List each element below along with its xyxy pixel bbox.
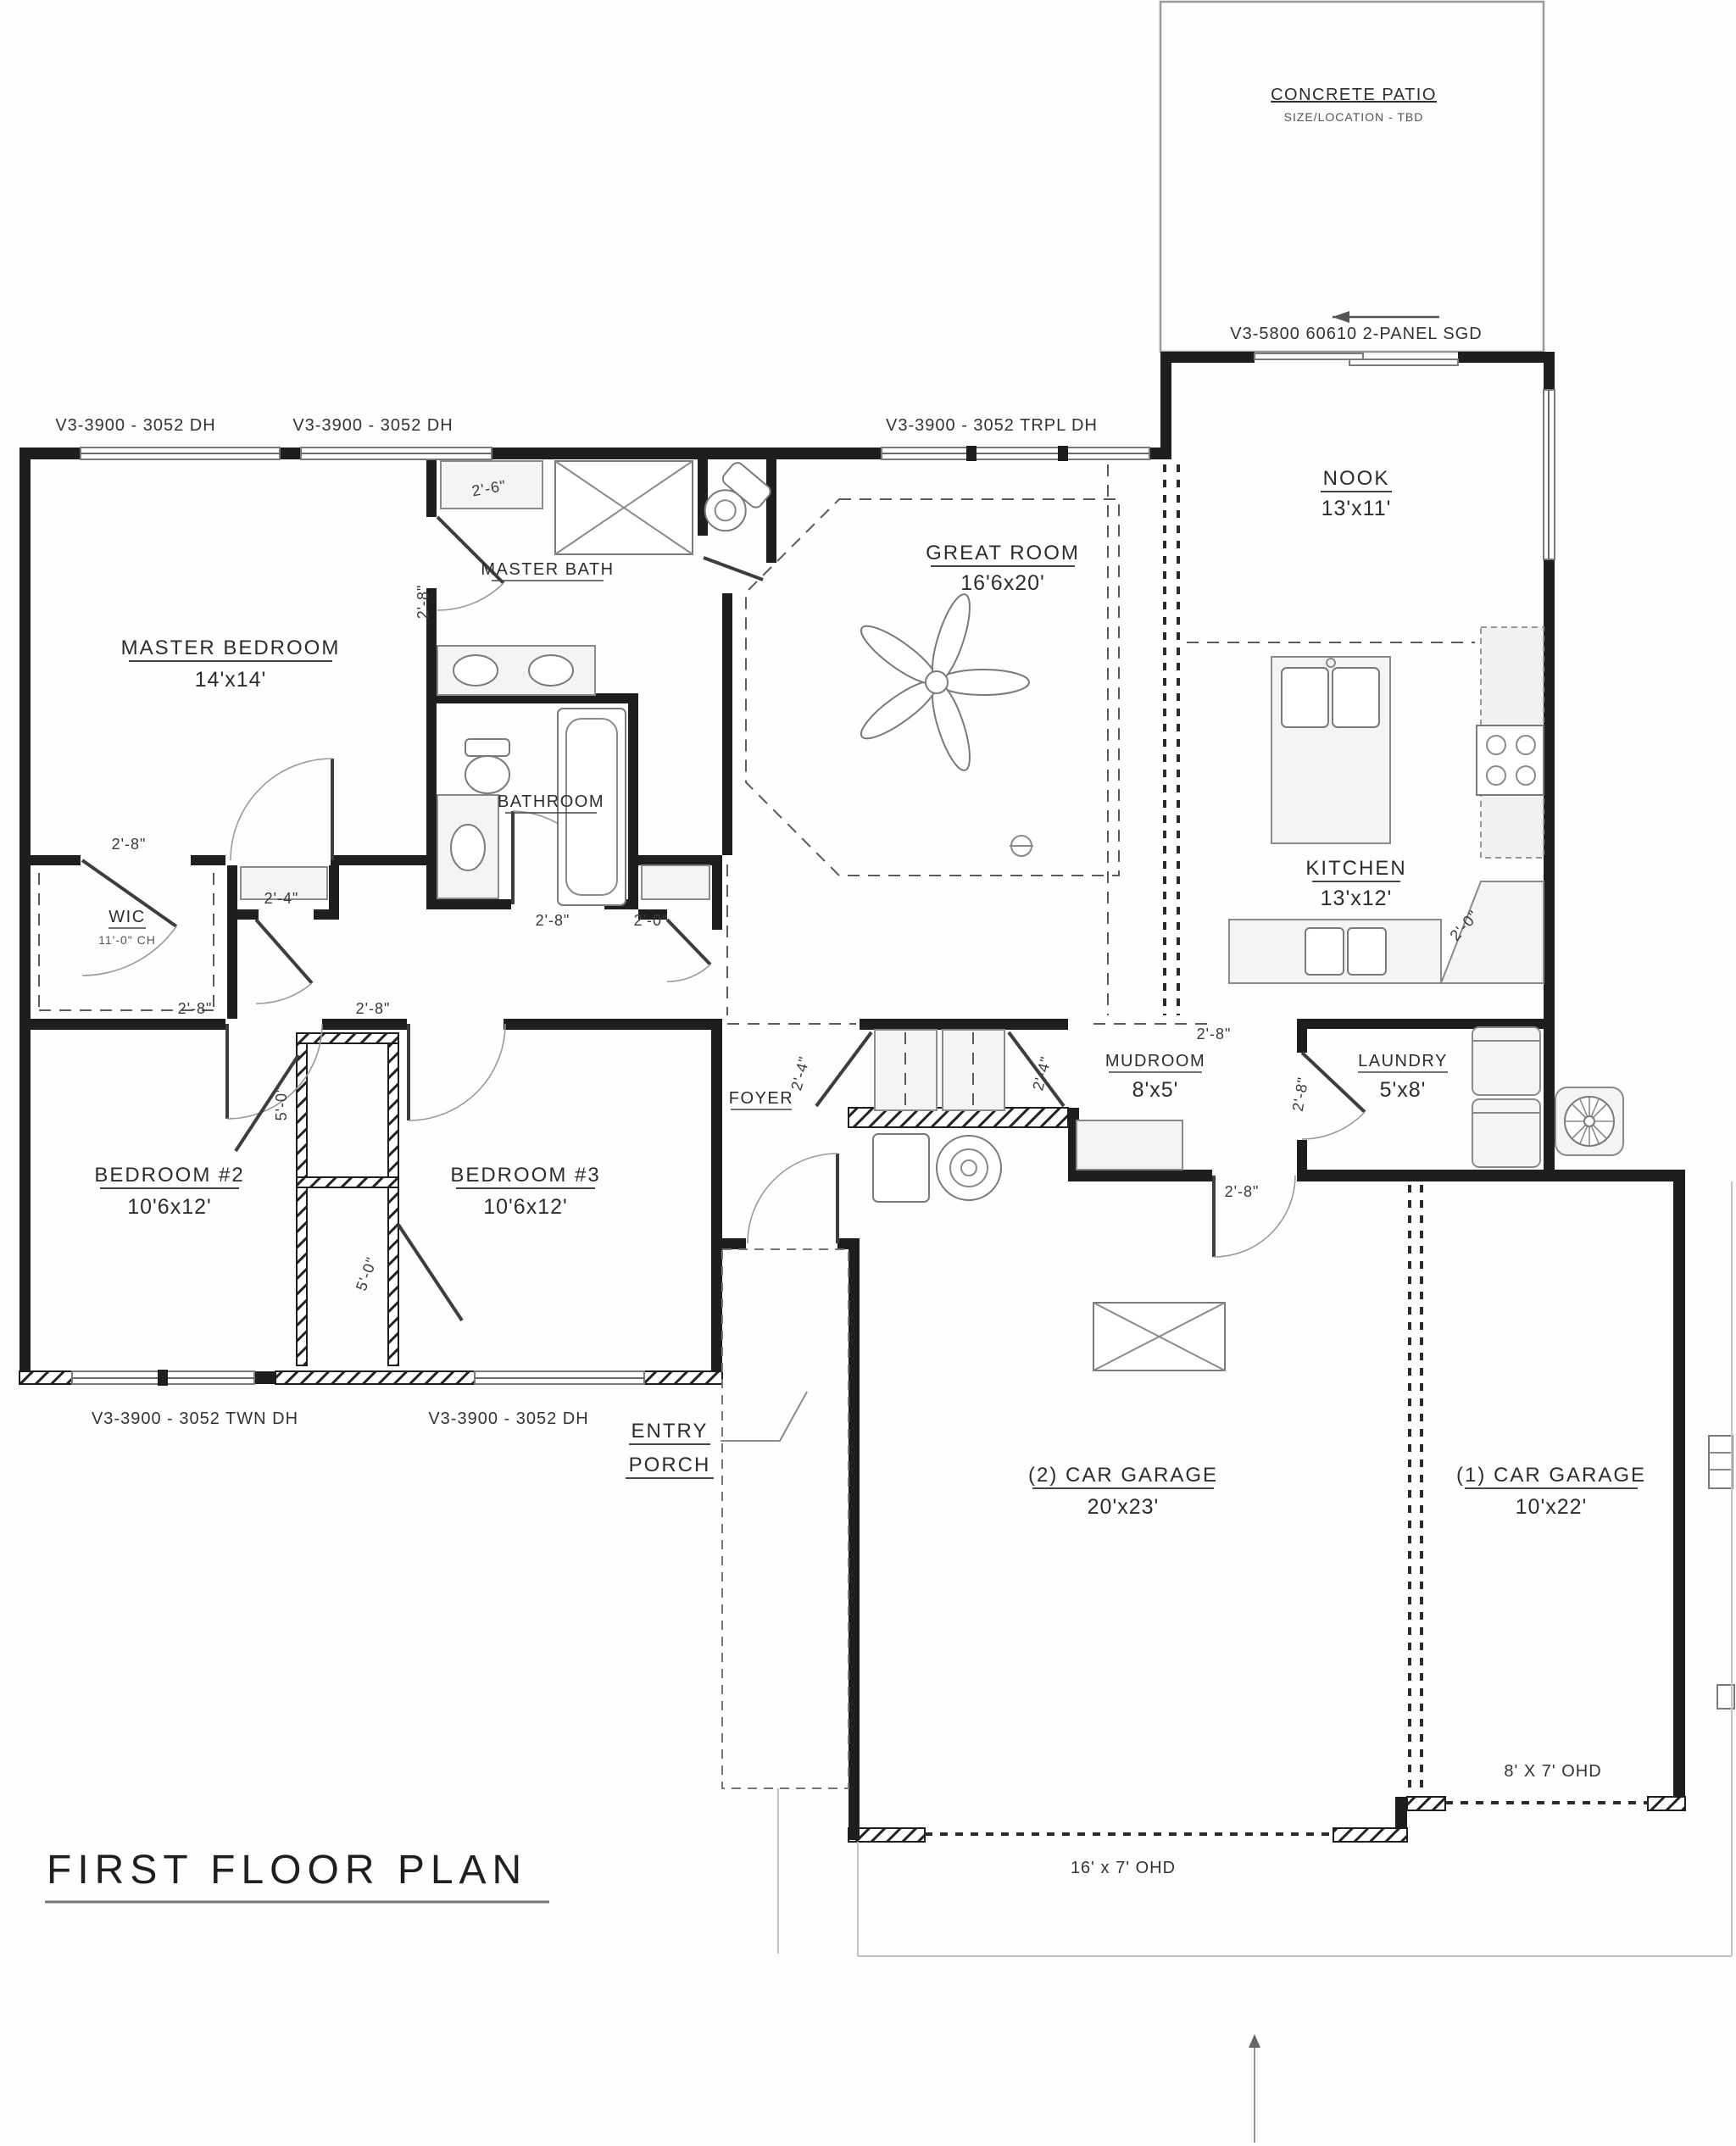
dim-foyer-closet-left: 2'-4" bbox=[787, 1054, 813, 1092]
kitchen-label: KITCHEN bbox=[1305, 857, 1406, 880]
garage1-label: (1) CAR GARAGE bbox=[1456, 1464, 1646, 1487]
dim-linen-door: 2'-4" bbox=[264, 890, 299, 907]
floor-plan-drawing: CONCRETE PATIO SIZE/LOCATION - TBD bbox=[0, 0, 1736, 2146]
sgd-label: V3-5800 60610 2-PANEL SGD bbox=[1230, 325, 1482, 343]
bedroom3-size: 10'6x12' bbox=[483, 1195, 568, 1219]
wic-ch-label: 11'-0" CH bbox=[98, 933, 156, 947]
dim-bedroom2-door: 2'-8" bbox=[178, 1000, 213, 1017]
wic-label: WIC bbox=[108, 908, 145, 926]
master-bath-label: MASTER BATH bbox=[481, 560, 614, 579]
window-greatroom-triple bbox=[882, 446, 1149, 461]
dim-master-suite: 2'-8" bbox=[415, 585, 431, 620]
nook-label: NOOK bbox=[1323, 467, 1390, 490]
great-room-size: 16'6x20' bbox=[960, 571, 1045, 595]
washer-dryer bbox=[1472, 1027, 1540, 1167]
entry-porch-leader bbox=[721, 1392, 807, 1441]
mudroom-bench bbox=[1077, 1120, 1182, 1170]
exterior-fan-icon bbox=[1555, 1087, 1623, 1155]
win-label-bottom-1: V3-3900 - 3052 TWN DH bbox=[92, 1409, 298, 1428]
win-label-bottom-2: V3-3900 - 3052 DH bbox=[428, 1409, 588, 1428]
master-bedroom-size: 14'x14' bbox=[195, 668, 267, 692]
kitchen-south-counter bbox=[1229, 920, 1441, 983]
bedroom2-size: 10'6x12' bbox=[127, 1195, 212, 1219]
win-label-top-2: V3-3900 - 3052 DH bbox=[292, 416, 453, 435]
window-bedroom3 bbox=[475, 1371, 644, 1384]
bedroom3-door bbox=[409, 1024, 505, 1120]
bedroom3-closet-door bbox=[398, 1225, 462, 1320]
bedroom3-label: BEDROOM #3 bbox=[450, 1164, 600, 1187]
garage2-size: 20'x23' bbox=[1088, 1495, 1160, 1519]
bathroom-toilet bbox=[465, 739, 509, 793]
linen-closet-door bbox=[256, 920, 312, 1004]
master-bedroom-door bbox=[231, 759, 332, 860]
plan-title: FIRST FLOOR PLAN bbox=[47, 1848, 527, 1893]
great-room-label: GREAT ROOM bbox=[926, 542, 1080, 564]
water-heater-icon bbox=[937, 1136, 1001, 1200]
mudroom-label: MUDROOM bbox=[1105, 1052, 1205, 1070]
ceiling-outlet-icon bbox=[1010, 836, 1033, 856]
patio-sub-label: SIZE/LOCATION - TBD bbox=[1284, 110, 1424, 124]
mudroom-size: 8'x5' bbox=[1132, 1078, 1179, 1102]
dim-closet2: 5'-0" bbox=[273, 1087, 290, 1121]
nook-size: 13'x11' bbox=[1321, 497, 1392, 520]
range-icon bbox=[1477, 726, 1544, 795]
dim-bath-door: 2'-8" bbox=[536, 912, 570, 929]
ohd16-label: 16' x 7' OHD bbox=[1071, 1859, 1176, 1877]
water-closet-door bbox=[704, 558, 763, 580]
kitchen-island bbox=[1271, 657, 1390, 843]
room-labels: NOOK 13'x11' GREAT ROOM 16'6x20' MASTER … bbox=[94, 467, 1646, 1519]
master-shower bbox=[555, 461, 693, 554]
master-vanity bbox=[437, 646, 595, 695]
laundry-size: 5'x8' bbox=[1380, 1078, 1427, 1102]
dim-wic-door: 2'-8" bbox=[112, 836, 147, 853]
win-label-triple: V3-3900 - 3052 TRPL DH bbox=[886, 416, 1098, 435]
dim-closet3: 5'-0" bbox=[353, 1254, 381, 1293]
foyer-label: FOYER bbox=[729, 1089, 793, 1108]
site-lines bbox=[721, 1181, 1732, 2143]
entry-porch-outline bbox=[722, 1249, 849, 1788]
entry-porch-label-1: ENTRY bbox=[632, 1420, 709, 1443]
hall-closet-shelf bbox=[642, 865, 709, 899]
window-nook-east bbox=[1544, 390, 1555, 559]
win-label-top-1: V3-3900 - 3052 DH bbox=[55, 416, 215, 435]
section-marker-icon bbox=[1249, 2034, 1260, 2143]
foyer-closet-door-left bbox=[816, 1032, 871, 1106]
front-door bbox=[748, 1154, 837, 1243]
bathroom-label: BATHROOM bbox=[498, 792, 604, 811]
laundry-door bbox=[1302, 1053, 1365, 1139]
sheet-title: FIRST FLOOR PLAN bbox=[45, 1848, 549, 1902]
hall-closet-door bbox=[667, 920, 710, 981]
garage2-label: (2) CAR GARAGE bbox=[1028, 1464, 1218, 1487]
laundry-label: LAUNDRY bbox=[1358, 1052, 1448, 1070]
electric-meter-icon bbox=[1709, 1436, 1734, 1709]
floor-plan-page: CONCRETE PATIO SIZE/LOCATION - TBD bbox=[0, 0, 1736, 2146]
bedroom2-label: BEDROOM #2 bbox=[94, 1164, 244, 1187]
ceiling-fan-icon bbox=[854, 591, 1029, 775]
dim-garage-door: 2'-8" bbox=[1225, 1183, 1260, 1200]
master-bedroom-label: MASTER BEDROOM bbox=[121, 637, 341, 659]
dim-mudroom-opening: 2'-8" bbox=[1197, 1026, 1232, 1042]
foyer-closets bbox=[875, 1030, 1004, 1110]
attic-access bbox=[1093, 1303, 1225, 1370]
dim-bedroom3-door: 2'-8" bbox=[356, 1000, 391, 1017]
ohd8-label: 8' X 7' OHD bbox=[1504, 1762, 1601, 1781]
kitchen-size: 13'x12' bbox=[1321, 887, 1393, 910]
dim-laundry-door: 2'-8" bbox=[1289, 1076, 1312, 1113]
window-master-1 bbox=[81, 448, 280, 459]
patio-label: CONCRETE PATIO bbox=[1271, 86, 1437, 104]
furnace-icon bbox=[873, 1134, 929, 1202]
garage1-size: 10'x22' bbox=[1516, 1495, 1588, 1519]
window-bedroom2-twin bbox=[72, 1370, 254, 1386]
kitchen-east-counter bbox=[1477, 627, 1544, 858]
entry-porch-label-2: PORCH bbox=[629, 1454, 711, 1476]
dim-hall-closet-door: 2'-0" bbox=[634, 912, 669, 929]
window-master-2 bbox=[301, 448, 492, 459]
bathroom-vanity bbox=[437, 795, 498, 898]
concrete-patio: CONCRETE PATIO SIZE/LOCATION - TBD bbox=[1160, 2, 1544, 352]
